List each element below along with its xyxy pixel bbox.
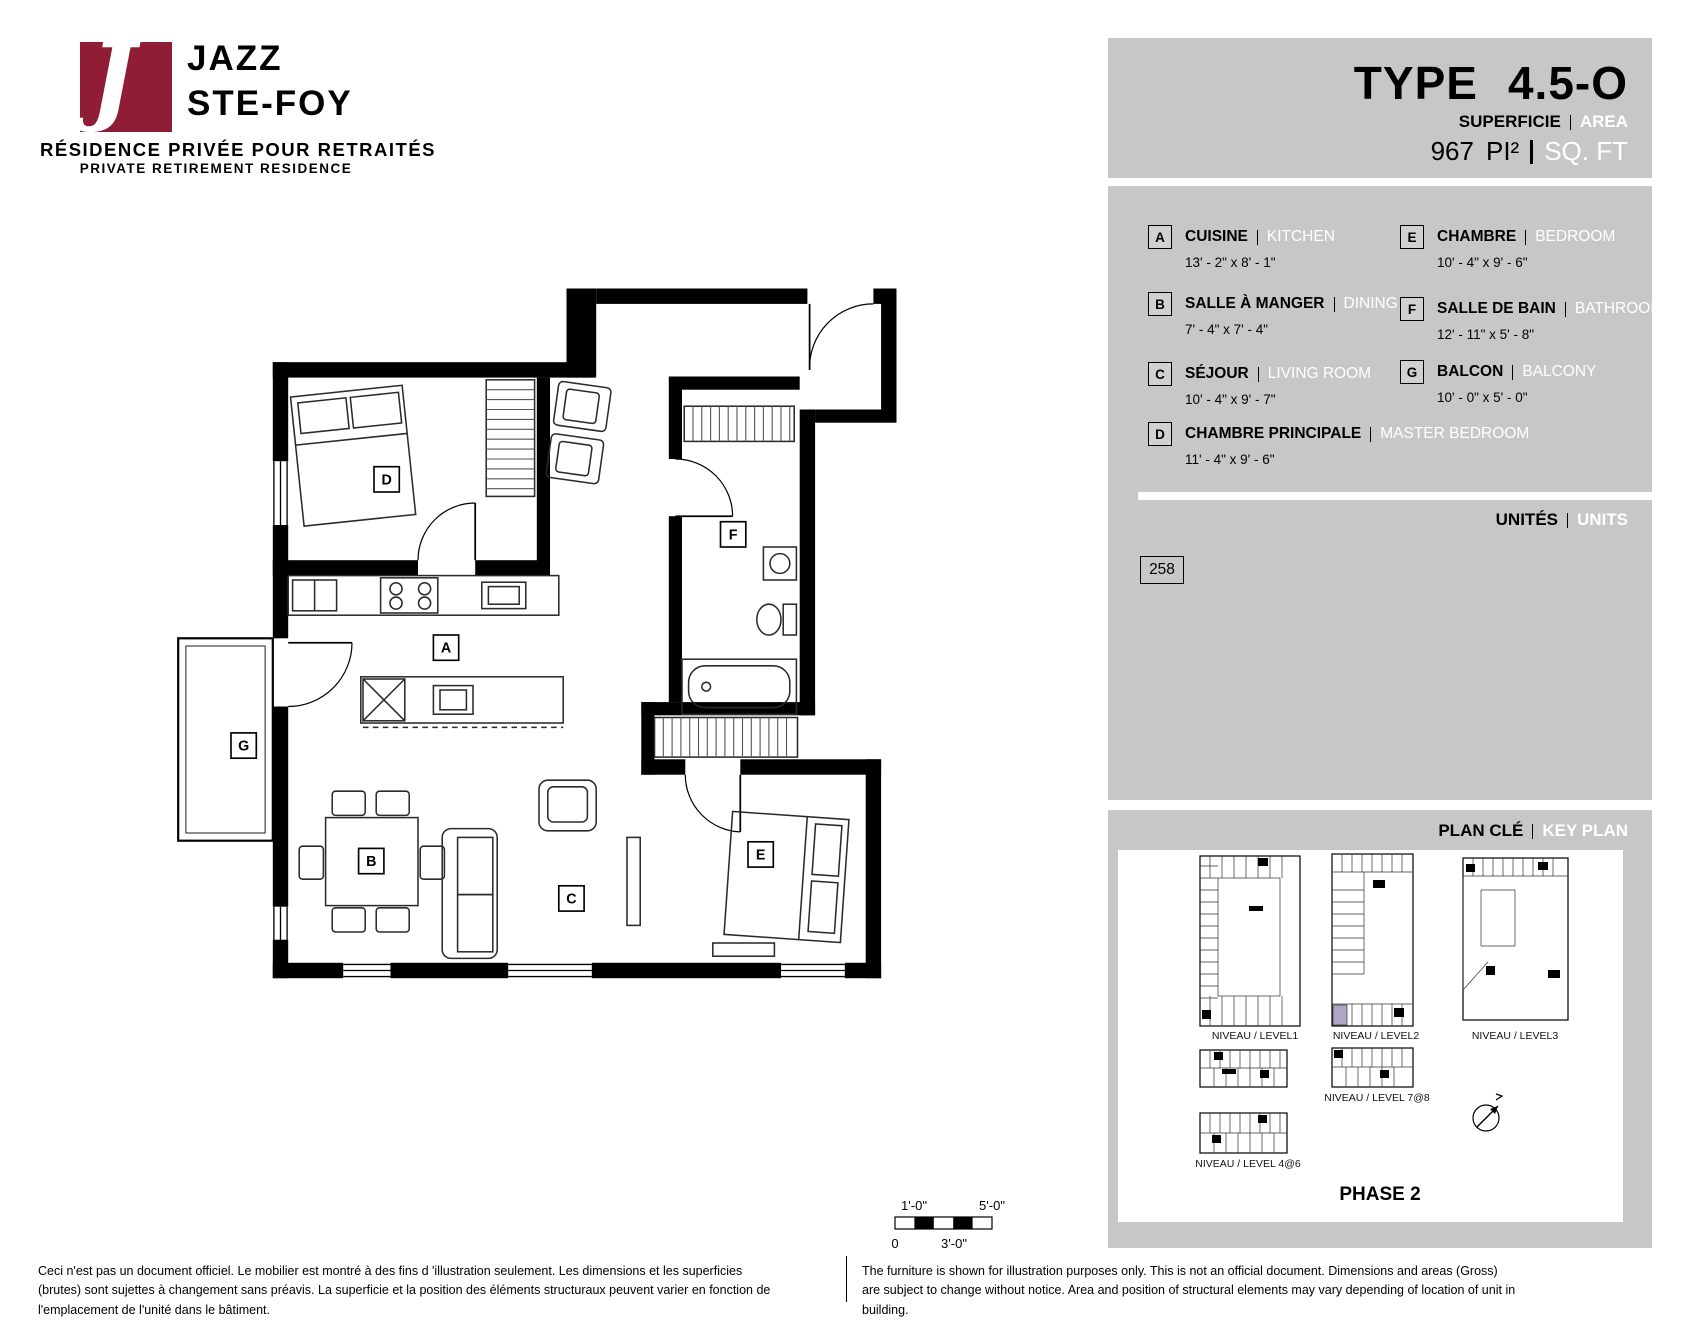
svg-text:G: G [238,739,249,755]
room-label-d: D [374,467,399,492]
room-dimensions: 10' - 4" x 9' - 6" [1437,255,1615,270]
key-plan-level7-8-label: NIVEAU / LEVEL 7@8 [1324,1092,1429,1104]
key-plan-level4-6-label: NIVEAU / LEVEL 4@6 [1195,1158,1300,1170]
room-name-en: LIVING ROOM [1268,365,1371,383]
bed-bench [713,943,775,956]
legend-room-master-bedroom: D CHAMBRE PRINCIPALE MASTER BEDROOM 11' … [1148,422,1529,467]
bathroom-closet [684,406,794,441]
type-label: TYPE [1354,56,1478,110]
scale-bar: 1'-0" 5'-0" 0 3'-0" [858,1192,1028,1258]
room-label-f: F [721,522,746,547]
room-dimensions: 10' - 0" x 5' - 0" [1437,390,1596,405]
master-closet [486,380,534,497]
room-name-en: DINING [1344,295,1398,313]
brand-logo-mark: J [80,42,172,132]
floor-plan-drawing: A B C D E F G [165,272,913,998]
scale-tick-3ft: 3'-0" [941,1236,967,1251]
divider-line [1257,230,1258,245]
entry-door [810,304,874,370]
divider-line [1334,297,1335,312]
scale-tick-1ft: 1'-0" [901,1198,927,1213]
scale-bar-segments [895,1217,992,1229]
key-plan-label-fr: PLAN CLÉ [1438,821,1523,841]
armchair [539,780,596,831]
room-dimensions: 7' - 4" x 7' - 4" [1185,322,1398,337]
divider-line [1530,140,1533,164]
sitting-chairs [546,381,612,484]
room-name-en: KITCHEN [1267,228,1335,246]
tv-console [627,837,640,925]
legend-room-bedroom: E CHAMBRE BEDROOM 10' - 4" x 9' - 6" [1400,225,1615,270]
brand-tagline-en: PRIVATE RETIREMENT RESIDENCE [40,161,392,176]
kitchen-island [361,677,563,728]
area-unit-en: SQ. FT [1544,136,1628,167]
legend-units-divider [1138,492,1652,500]
room-name-fr: SALLE À MANGER [1185,295,1325,313]
divider-line [1258,367,1259,382]
room-legend-panel: A CUISINE KITCHEN 13' - 2" x 8' - 1" B S… [1108,186,1652,800]
room-label-a: A [433,635,458,660]
divider-line [1370,427,1371,442]
divider-line [1570,115,1571,130]
room-name-fr: BALCON [1437,363,1503,381]
room-key-d: D [1148,422,1172,446]
scale-tick-5ft: 5'-0" [979,1198,1005,1213]
room-name-en: BEDROOM [1535,228,1615,246]
type-value: 4.5-O [1508,56,1628,110]
room-key-f: F [1400,297,1424,321]
room-dimensions: 12' - 11" x 5' - 8" [1437,327,1663,342]
master-bed [291,385,416,526]
area-label-row: SUPERFICIE AREA [1459,112,1628,132]
room-dimensions: 13' - 2" x 8' - 1" [1185,255,1335,270]
room-key-g: G [1400,360,1424,384]
key-plan-level1-label: NIVEAU / LEVEL1 [1212,1030,1298,1042]
svg-text:A: A [441,641,451,657]
type-header-panel: TYPE 4.5-O SUPERFICIE AREA 967 PI² SQ. F… [1108,38,1652,178]
area-label-en: AREA [1580,112,1628,132]
key-plan-building-level4-6 [1200,1113,1287,1153]
kitchen-counter [288,576,559,616]
room-name-fr: SÉJOUR [1185,365,1249,383]
legend-room-dining: B SALLE À MANGER DINING 7' - 4" x 7' - 4… [1148,292,1398,337]
key-plan-canvas: NIVEAU / LEVEL1 NIVEAU / LEVEL2 NIVEAU /… [1118,850,1623,1222]
room-key-b: B [1148,292,1172,316]
disclaimer-english: The furniture is shown for illustration … [862,1262,1517,1320]
key-plan-label-en: KEY PLAN [1542,821,1628,841]
area-value: 967 [1431,136,1474,167]
divider-line [1532,824,1533,839]
room-name-en: BATHROOM [1575,300,1663,318]
washer [763,547,796,580]
disclaimer-divider [846,1256,847,1302]
balcony-door [288,643,352,707]
brand-tagline-fr: RÉSIDENCE PRIVÉE POUR RETRAITÉS [40,139,436,161]
area-value-row: 967 PI² SQ. FT [1431,136,1628,167]
units-label-fr: UNITÉS [1496,510,1558,530]
floor-plan-sheet: { "logo": { "monogram": "J", "name_line1… [0,0,1690,1306]
area-unit-fr: PI² [1486,136,1519,167]
bathroom-door [675,459,732,516]
disclaimer-french: Ceci n'est pas un document officiel. Le … [38,1262,786,1320]
svg-text:E: E [756,847,766,863]
key-plan-level3-label: NIVEAU / LEVEL3 [1472,1030,1558,1042]
divider-line [1525,230,1526,245]
units-label-en: UNITS [1577,510,1628,530]
scale-tick-0: 0 [891,1236,898,1251]
room-key-c: C [1148,362,1172,386]
unit-type-title: TYPE 4.5-O [1354,56,1628,110]
room-label-e: E [748,842,773,867]
room-label-b: B [359,848,384,873]
room-name-en: MASTER BEDROOM [1380,425,1529,443]
master-bedroom-door [418,503,475,560]
room-key-e: E [1400,225,1424,249]
units-heading: UNITÉS UNITS [1496,510,1628,530]
legend-room-living: C SÉJOUR LIVING ROOM 10' - 4" x 9' - 7" [1148,362,1371,407]
room-name-en: BALCONY [1522,363,1596,381]
divider-line [1565,302,1566,317]
area-label-fr: SUPERFICIE [1459,112,1561,132]
balcony-outline [178,638,273,840]
svg-text:D: D [381,472,391,488]
key-plan-highlighted-unit [1333,1005,1347,1025]
brand-name-line1: JAZZ [187,41,283,76]
brand-monogram-icon: J [90,42,135,132]
svg-text:C: C [566,891,576,907]
phase-label: PHASE 2 [1339,1184,1420,1206]
key-plan-panel: PLAN CLÉ KEY PLAN [1108,810,1652,1248]
key-plan-building-level1 [1200,856,1300,1026]
key-plan-heading: PLAN CLÉ KEY PLAN [1438,821,1628,841]
bedroom-bed [724,811,849,942]
key-plan-building-level1-bar [1200,1050,1287,1087]
room-label-g: G [231,733,256,758]
svg-text:B: B [366,854,376,870]
room-name-fr: CHAMBRE PRINCIPALE [1185,425,1361,443]
key-plan-building-level3 [1463,858,1568,1020]
unit-number-badge: 258 [1140,556,1184,584]
legend-room-cuisine: A CUISINE KITCHEN 13' - 2" x 8' - 1" [1148,225,1335,270]
room-name-fr: SALLE DE BAIN [1437,300,1556,318]
key-plan-level2-label: NIVEAU / LEVEL2 [1333,1030,1419,1042]
toilet [757,604,797,635]
key-plan-building-level2 [1332,854,1413,1026]
hall-closet [655,718,798,758]
sofa [442,829,497,959]
svg-text:F: F [729,527,738,543]
room-key-a: A [1148,225,1172,249]
legend-room-bathroom: F SALLE DE BAIN BATHROOM 12' - 11" x 5' … [1400,297,1663,342]
room-label-c: C [559,886,584,911]
room-dimensions: 11' - 4" x 9' - 6" [1185,452,1529,467]
legend-room-balcony: G BALCON BALCONY 10' - 0" x 5' - 0" [1400,360,1596,405]
room-dimensions: 10' - 4" x 9' - 7" [1185,392,1371,407]
room-name-fr: CUISINE [1185,228,1248,246]
divider-line [1567,513,1568,528]
compass-icon [1473,1094,1502,1131]
divider-line [1512,365,1513,380]
room-name-fr: CHAMBRE [1437,228,1516,246]
key-plan-building-level7-8 [1332,1048,1413,1087]
brand-name-line2: STE-FOY [187,86,353,121]
